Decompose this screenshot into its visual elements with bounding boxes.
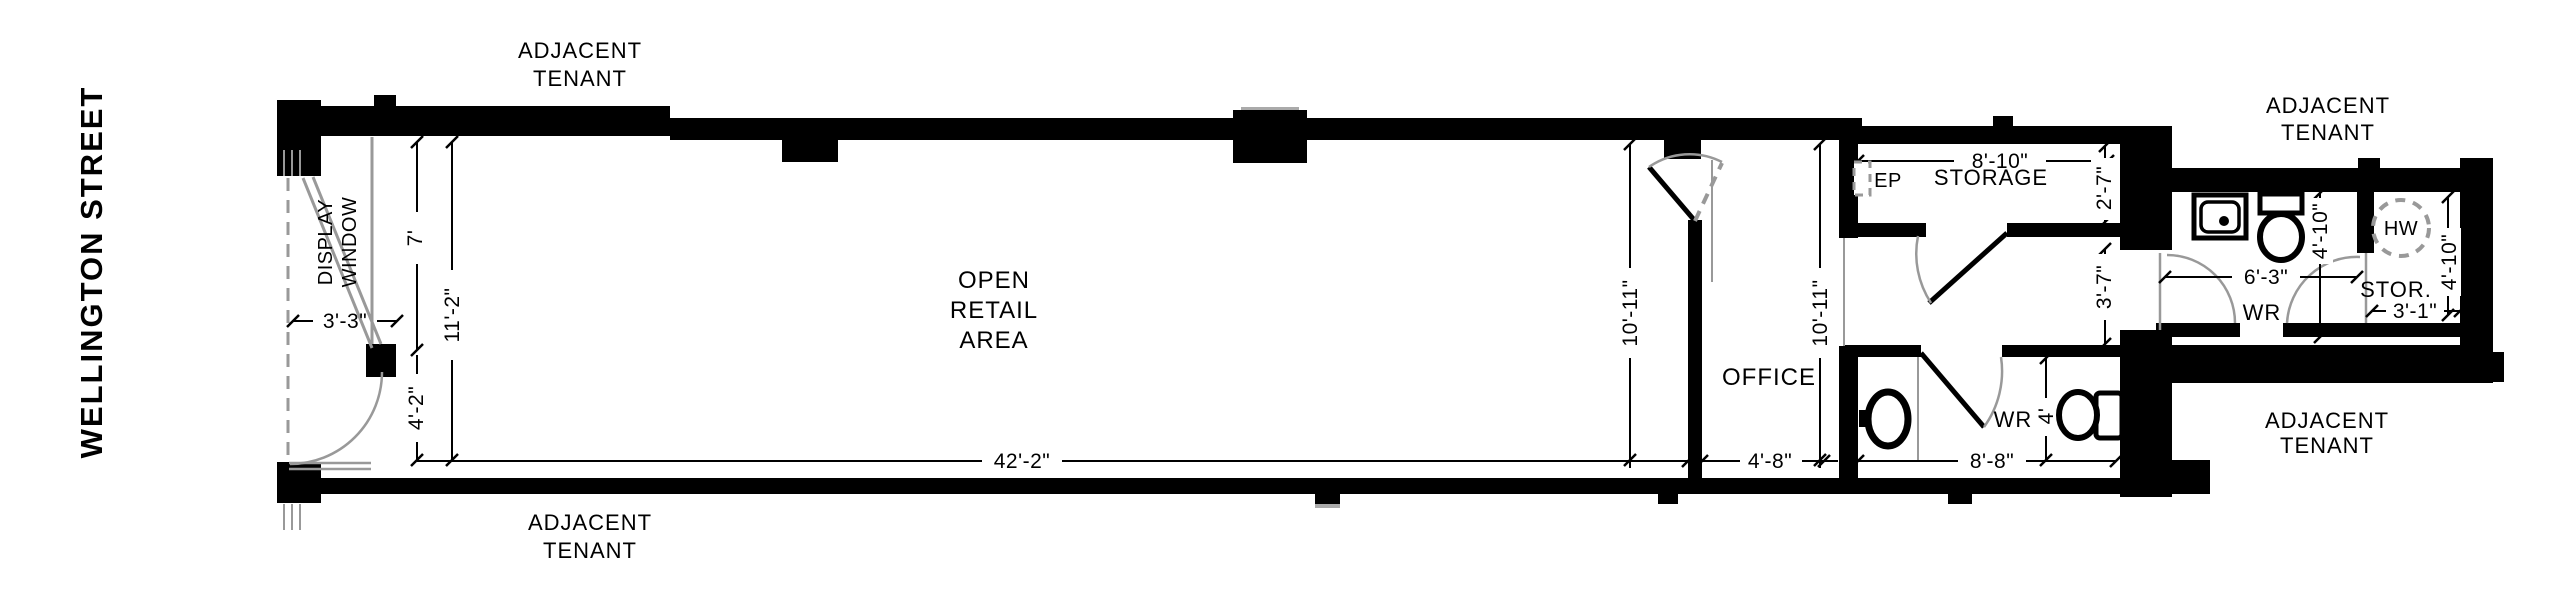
bottom-wall-stub bbox=[2172, 460, 2210, 494]
open-retail-area-line2: RETAIL bbox=[950, 297, 1038, 324]
column-a bbox=[782, 136, 838, 162]
washroom-toilet bbox=[2059, 392, 2122, 438]
dim-display-window-depth: 7' bbox=[404, 230, 427, 247]
display-window-line2: WINDOW bbox=[339, 197, 361, 288]
dim-display-window-width: 3'-3" bbox=[323, 310, 367, 333]
office-west-partition bbox=[1688, 220, 1702, 478]
washroom-north-wall-east bbox=[2002, 345, 2135, 357]
bottom-bump-2 bbox=[1658, 494, 1678, 504]
adjacent-tenant-right-top-line1: ADJACENT bbox=[2266, 93, 2390, 118]
display-window-line1: DISPLAY bbox=[315, 199, 337, 286]
washroom-sink bbox=[1859, 392, 1908, 446]
dim-washroom-width: 8'-8" bbox=[1970, 450, 2014, 473]
adjacent-tenant-right-top-line2: TENANT bbox=[2281, 120, 2375, 145]
top-wall-bump bbox=[374, 95, 396, 107]
storage-door-swing-arc bbox=[1916, 236, 1931, 303]
adjacent-tenant-top-line1: ADJACENT bbox=[518, 38, 642, 63]
office-east-wall-lower bbox=[1839, 346, 1858, 478]
entry-door-swing-arc bbox=[290, 372, 382, 464]
dim-entry-depth: 4'-2" bbox=[405, 386, 428, 430]
storage-top-bump bbox=[1993, 116, 2013, 127]
storage-south-wall-west bbox=[1843, 223, 1926, 237]
upper-wr-entry-swing-arc bbox=[2167, 255, 2235, 323]
right-block-south-thin-west bbox=[2156, 323, 2240, 337]
office-label: OFFICE bbox=[1722, 364, 1816, 391]
open-retail-area-line3: AREA bbox=[959, 327, 1028, 354]
adjacent-tenant-top-line2: TENANT bbox=[533, 66, 627, 91]
dim-office-depth: 10'-11" bbox=[1809, 279, 1832, 346]
upper-stor-door-swing-arc bbox=[2287, 257, 2360, 323]
washroom-door-leaf bbox=[1921, 353, 1984, 427]
floor-plan-drawing: WELLINGTON STREET ADJACENT TENANT ADJACE… bbox=[0, 0, 2560, 603]
office-door-leaf-dashed bbox=[1695, 163, 1722, 221]
upper-washroom-label: WR bbox=[2243, 300, 2282, 325]
column-b bbox=[1233, 110, 1307, 163]
walls bbox=[277, 95, 2504, 508]
dim-retail-depth: 10'-11" bbox=[1619, 279, 1642, 346]
office-door-leaf bbox=[1649, 167, 1695, 221]
right-block-step bbox=[2493, 352, 2504, 382]
right-block-mid-wall bbox=[2357, 192, 2374, 253]
right-block-top-bump bbox=[2358, 158, 2380, 170]
storage-top-wall bbox=[1843, 126, 2135, 144]
dim-upper-storage-depth: 4'-10" bbox=[2438, 234, 2461, 291]
upper-washroom-sink bbox=[2194, 195, 2246, 238]
bottom-bump-1-cap bbox=[1315, 504, 1340, 508]
storage-south-wall-east bbox=[2007, 223, 2135, 237]
upper-washroom-toilet bbox=[2260, 194, 2302, 260]
storage-door-leaf bbox=[1929, 233, 2007, 303]
right-block-bottom-wall bbox=[2120, 345, 2493, 383]
adjacent-tenant-bottom-line2: TENANT bbox=[543, 538, 637, 563]
dim-upper-washroom-depth: 4'-10" bbox=[2309, 203, 2332, 260]
top-wall-west bbox=[278, 106, 670, 136]
electrical-panel-label: EP bbox=[1874, 170, 1902, 192]
dim-storage-depth: 2'-7" bbox=[2093, 166, 2116, 210]
street-label: WELLINGTON STREET bbox=[74, 86, 109, 459]
adjacent-tenant-right-bottom-line1: ADJACENT bbox=[2265, 408, 2389, 433]
dim-storefront-depth-total: 11'-2" bbox=[441, 288, 464, 343]
dim-washroom-depth: 4' bbox=[2035, 408, 2058, 425]
dim-office-width: 4'-8" bbox=[1748, 450, 1792, 473]
bottom-bump-1 bbox=[1315, 494, 1340, 504]
washroom-label: WR bbox=[1994, 407, 2033, 432]
washroom-north-wall-west bbox=[1843, 345, 1921, 357]
floor-plan-page: WELLINGTON STREET ADJACENT TENANT ADJACE… bbox=[0, 0, 2560, 603]
upper-storage-label: STOR. bbox=[2360, 277, 2432, 302]
dim-upper-washroom-width: 6'-3" bbox=[2244, 266, 2288, 289]
open-retail-area-line1: OPEN bbox=[958, 267, 1030, 294]
dim-retail-length: 42'-2" bbox=[994, 450, 1051, 473]
dim-storage-width: 8'-10" bbox=[1972, 150, 2029, 173]
dim-hall-depth: 3'-7" bbox=[2093, 265, 2116, 309]
right-block-right-wall bbox=[2460, 158, 2493, 352]
adjacent-tenant-right-bottom-line2: TENANT bbox=[2280, 433, 2374, 458]
electrical-panel-symbol bbox=[1854, 162, 1870, 195]
dim-upper-storage-width: 3'-1" bbox=[2393, 300, 2437, 323]
hot-water-label: HW bbox=[2384, 218, 2418, 240]
bottom-wall bbox=[277, 478, 2172, 494]
right-block-south-thin-east bbox=[2283, 323, 2460, 337]
adjacent-tenant-bottom-line1: ADJACENT bbox=[528, 510, 652, 535]
bottom-bump-3 bbox=[1948, 494, 1972, 504]
